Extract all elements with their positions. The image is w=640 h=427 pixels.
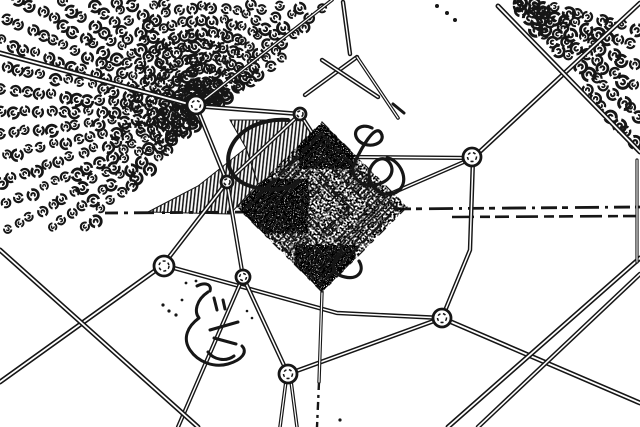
tree-blob [110,17,120,27]
tree-blob [104,194,115,205]
tree-blob [87,173,98,184]
dot-mark [161,303,164,306]
tree-blob [128,71,138,81]
tree-blob [51,176,59,184]
tree-blob [80,33,92,45]
tree-blob [37,205,49,217]
tree-blob [55,215,66,226]
tree-blob [251,15,262,26]
tree-blob [2,149,13,160]
tree-blob [624,37,637,50]
tree-blob [48,138,58,148]
tree-blob [38,6,50,18]
dot-mark [185,282,188,285]
tree-blob [123,15,135,27]
dot-mark [174,313,177,316]
tree-blob [73,133,85,145]
guy-wire-core [178,277,243,427]
anchor-node [221,176,233,188]
tree-blob [33,124,45,136]
tree-blob [632,110,640,123]
tree-blob [13,193,23,203]
tree-blob [15,218,24,227]
anchor-node [187,96,205,114]
tree-blob [66,207,78,219]
tree-blob [57,0,69,7]
tree-blob [104,34,117,47]
tree-blob [0,34,7,44]
tree-blob [122,106,131,115]
bush-scribble [353,126,404,194]
dot-mark [453,18,457,22]
dot-mark [167,309,170,312]
tree-blob [10,86,20,96]
road-line-core [442,318,640,403]
tree-blob [21,86,33,98]
tree-blob [88,213,104,229]
tree-blob [259,23,272,36]
guy-wire-core [291,381,297,427]
tree-blob [26,187,41,202]
tree-blob [629,80,639,90]
road-line-core [448,258,640,427]
tree-blob [42,160,52,170]
tree-blob [0,84,6,95]
tree-blob [221,4,231,14]
tree-blob [233,5,243,15]
tree-blob [60,171,71,182]
tree-blob [0,128,6,139]
dot-mark [181,299,184,302]
anchor-node [294,108,306,120]
tree-blob [256,4,266,14]
tree-blob [96,106,109,119]
guy-wire-core [196,106,227,182]
tree-blob [247,26,258,37]
guy-wire-core [280,381,286,427]
tree-blob [6,106,20,120]
tree-blob [69,107,81,119]
tree-blob [142,162,158,178]
tree-blob [88,142,98,152]
anchor-node [433,309,451,327]
dashed-line [395,207,640,209]
tree-blob [10,148,24,162]
tree-blob [0,178,7,189]
tree-blob [80,51,95,66]
tree-blob [84,131,96,143]
tree-blob [140,133,150,143]
tree-blob [19,125,30,136]
road-line-core [478,274,640,427]
tree-blob [127,49,137,59]
tree-blob [69,44,81,56]
tree-blob [35,69,45,79]
tree-blob [84,118,93,127]
dot-mark [246,310,249,313]
tree-blob [32,107,43,118]
tree-blob [9,127,19,137]
tree-blob [23,211,34,222]
tree-blob [93,94,106,107]
tree-blob [177,16,188,27]
tree-blob [48,222,58,232]
tree-blob [19,168,30,179]
guy-wire-core [196,106,300,114]
dot-mark [338,418,341,421]
tree-blob [12,18,25,31]
tree-blob [44,123,60,139]
road-line [163,265,442,318]
tree-blob [59,106,70,117]
tree-blob [39,181,50,192]
tree-blob [49,13,59,23]
dot-mark [195,280,198,283]
tree-blob [631,24,640,36]
anchor-node [236,270,250,284]
guy-wire-core [343,2,350,54]
tree-blob [103,141,115,153]
tree-blob [96,204,104,212]
tree-blob [90,21,101,32]
tree-blob [115,169,124,178]
tree-blob [120,154,129,163]
tree-blob [0,106,6,117]
dashed-line [317,382,319,427]
tree-blob [135,127,145,137]
edge-art-canvas [0,0,640,427]
tree-blob [137,9,150,22]
tree-blob [117,40,127,50]
tree-blob [11,0,26,7]
tree-blob [13,65,23,75]
tree-blob [19,105,31,117]
tree-blob [206,3,217,14]
tree-blob [125,0,140,13]
tree-blob [45,88,57,100]
tree-blob [49,73,62,86]
road-line-core [163,265,442,318]
anchor-node [463,148,481,166]
tree-blob [58,39,68,49]
dashed-line [105,212,258,213]
dot-mark [251,317,254,320]
tree-blob [48,198,60,210]
tree-blob [0,13,13,26]
dot-mark [445,11,449,15]
tree-blob [149,0,159,10]
dashed-line [452,216,640,217]
tree-blob [30,47,40,57]
tree-blob [46,105,59,118]
tree-blob [34,141,46,153]
dot-mark [435,4,439,8]
tree-blob [63,151,74,162]
tree-blob [24,144,33,153]
tree-blob [118,188,127,197]
tree-blob [615,75,630,90]
tree-blob [135,27,147,39]
tree-blob [78,147,90,159]
guy-wire-core [288,318,442,374]
tree-blob [27,24,41,38]
tree-blob [102,167,112,177]
tree-blob [33,88,44,99]
tree-blob [2,199,11,208]
tree-blob [244,0,257,11]
tree-blob [597,63,608,74]
tree-blob [38,30,50,42]
tree-blob [628,57,640,70]
guy-wire-core [350,157,473,158]
tree-blob [580,32,589,41]
tree-blob [270,12,281,23]
tree-blob [71,168,84,181]
tree-blob [81,222,89,230]
tree-blob [3,225,12,234]
tree-blob [174,5,185,16]
tree-blob [69,186,81,198]
tree-blob [51,155,64,168]
tree-blob [274,0,285,11]
tree-blob [59,136,73,150]
tree-blob [582,11,593,22]
guy-wire [442,158,473,318]
scene-svg [0,0,640,427]
anchor-node [154,256,174,276]
tree-blob [237,22,246,31]
tree-blob [76,200,88,212]
anchor-node [279,365,297,383]
